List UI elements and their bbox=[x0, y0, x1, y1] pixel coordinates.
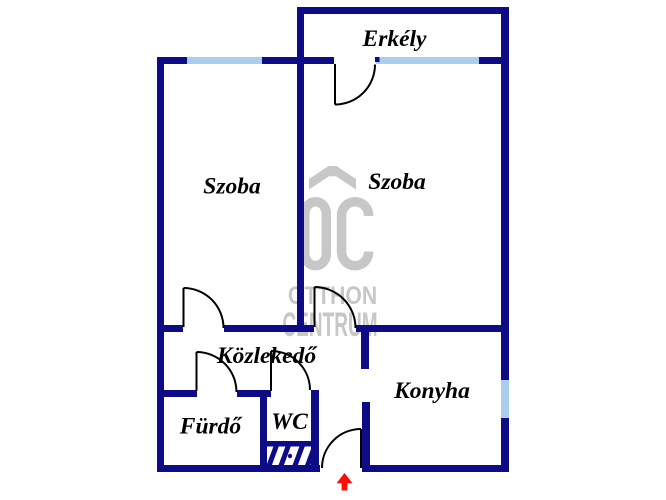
svg-text:Szoba: Szoba bbox=[203, 174, 261, 200]
svg-text:Közlekedő: Közlekedő bbox=[216, 343, 317, 369]
svg-text:Fürdő: Fürdő bbox=[179, 414, 243, 440]
svg-text:Erkély: Erkély bbox=[362, 26, 428, 52]
svg-text:Szoba: Szoba bbox=[368, 169, 426, 195]
svg-text:WC: WC bbox=[271, 409, 308, 435]
svg-text:Konyha: Konyha bbox=[393, 378, 470, 404]
